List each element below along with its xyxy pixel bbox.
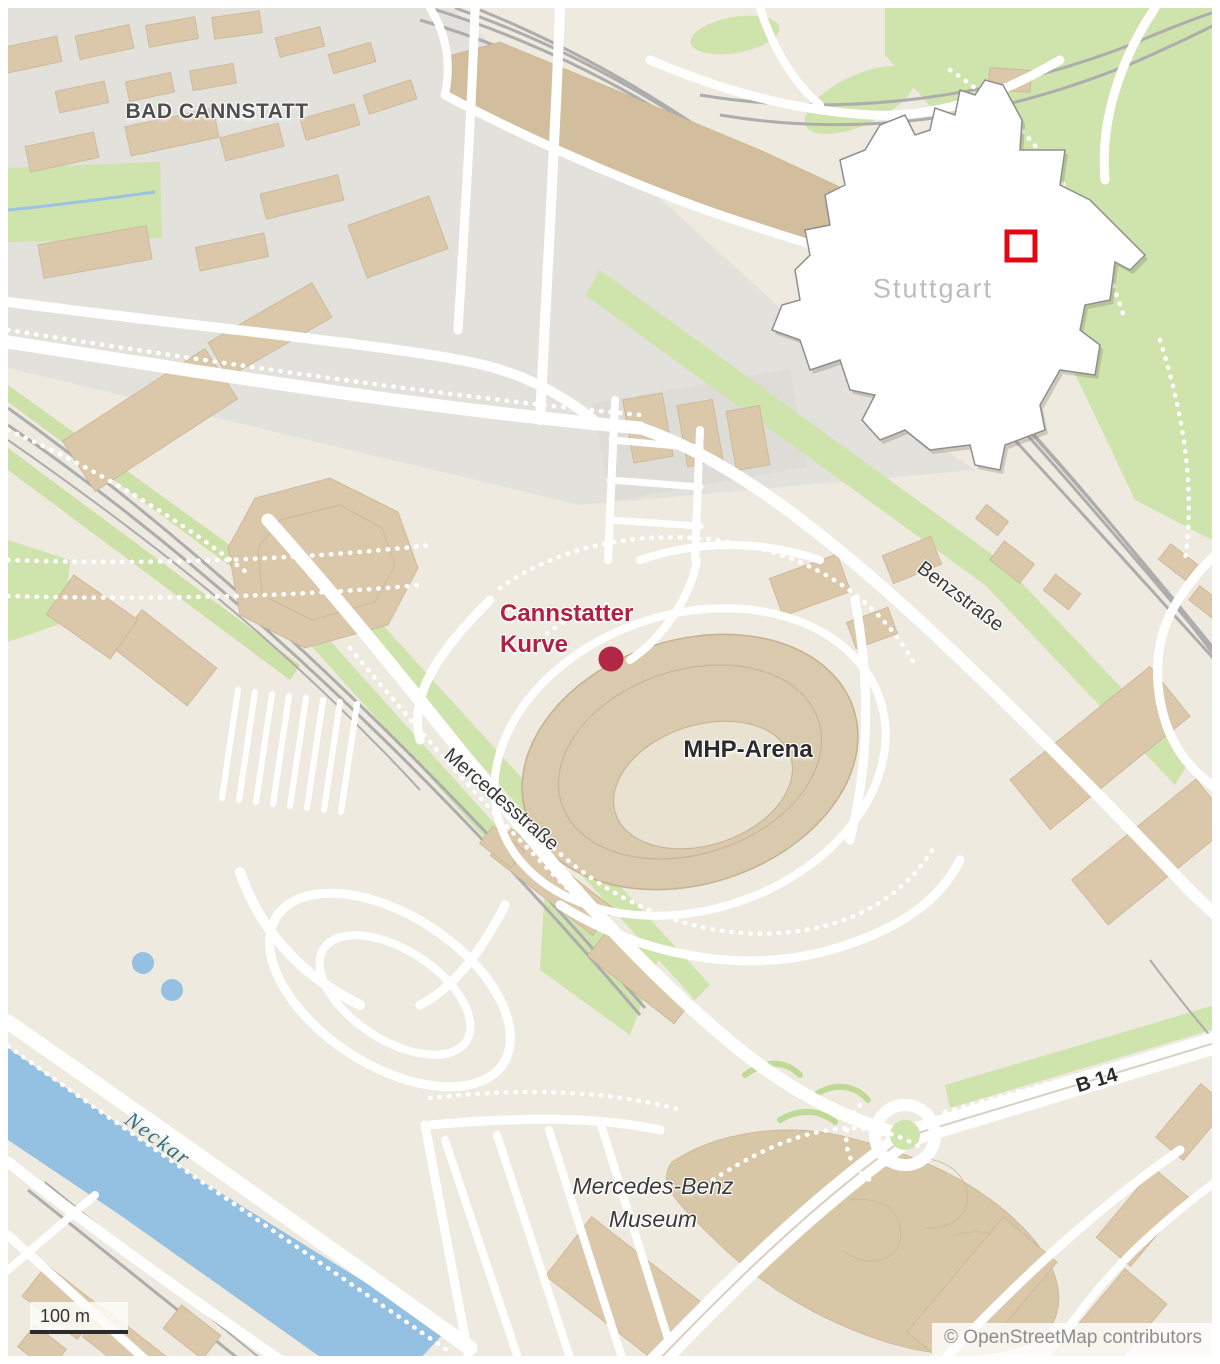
map-canvas: BAD CANNSTATT Cannstatter Kurve MHP-Aren… xyxy=(8,8,1212,1356)
ponds xyxy=(132,952,183,1001)
marker-dot xyxy=(599,647,624,672)
scale-bar-rule xyxy=(30,1330,128,1334)
scale-bar-label: 100 m xyxy=(30,1302,128,1330)
map-figure: BAD CANNSTATT Cannstatter Kurve MHP-Aren… xyxy=(0,0,1220,1364)
scale-bar: 100 m xyxy=(30,1302,128,1334)
basemap xyxy=(8,8,1212,1356)
attribution: © OpenStreetMap contributors xyxy=(932,1323,1212,1356)
